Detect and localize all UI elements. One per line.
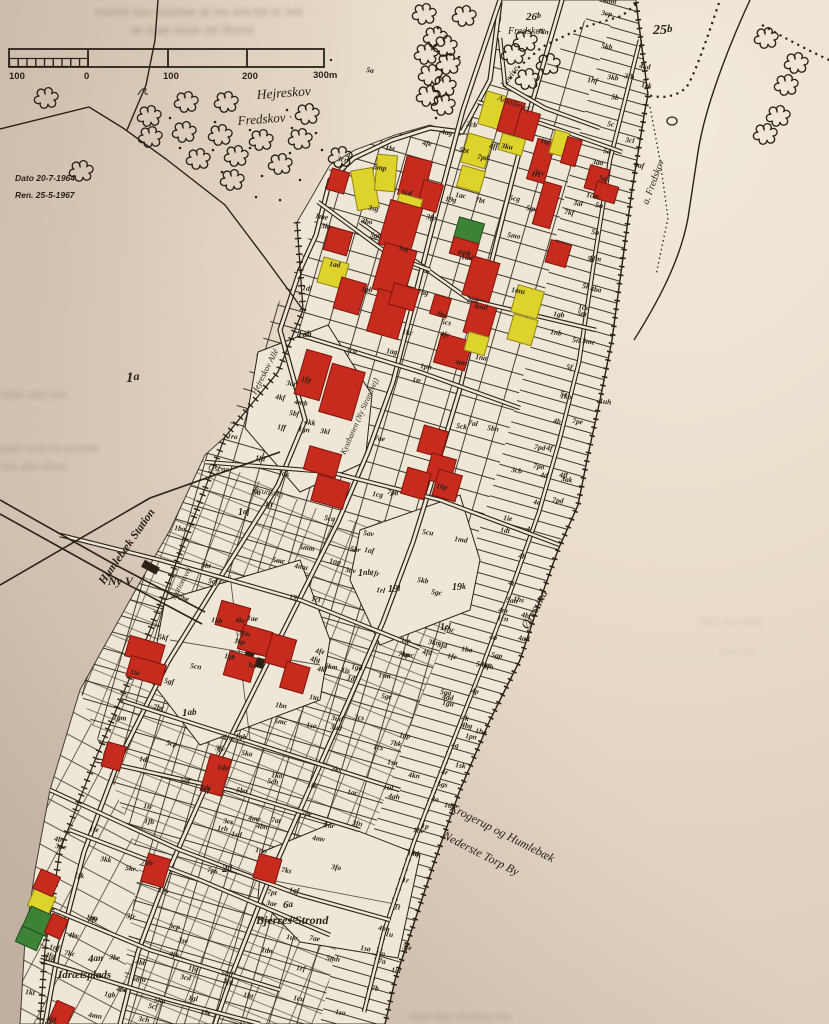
svg-text:3kn: 3kn xyxy=(427,637,441,648)
svg-text:7ae: 7ae xyxy=(374,433,387,444)
svg-text:1ib: 1ib xyxy=(307,780,318,790)
svg-text:3ar: 3ar xyxy=(285,378,298,389)
svg-text:5ba: 5ba xyxy=(236,785,249,796)
svg-text:1tg: 1tg xyxy=(540,136,551,146)
svg-text:5ka: 5ka xyxy=(154,995,167,1006)
svg-text:5gc: 5gc xyxy=(381,691,394,702)
svg-text:5ca: 5ca xyxy=(324,513,336,523)
svg-text:3sg: 3sg xyxy=(397,243,410,254)
svg-text:1kb: 1kb xyxy=(211,615,224,626)
svg-text:4kd: 4kd xyxy=(638,61,652,72)
svg-text:1fd: 1fd xyxy=(255,453,266,463)
svg-text:1sk: 1sk xyxy=(455,760,467,770)
svg-text:3kb: 3kb xyxy=(606,72,620,83)
svg-text:7bg: 7bg xyxy=(417,287,430,298)
svg-text:3sg: 3sg xyxy=(367,203,380,214)
svg-text:3cn: 3cn xyxy=(336,154,349,165)
svg-text:1gm: 1gm xyxy=(113,712,128,723)
svg-text:5gp: 5gp xyxy=(491,650,504,661)
svg-text:4ad: 4ad xyxy=(517,633,531,644)
svg-text:3sp: 3sp xyxy=(399,635,412,646)
svg-text:4ag: 4ag xyxy=(440,127,454,138)
svg-text:3ch: 3ch xyxy=(137,1014,150,1024)
svg-text:Ren. 25-5-1967: Ren. 25-5-1967 xyxy=(15,190,76,200)
svg-text:5cd: 5cd xyxy=(401,187,413,197)
svg-text:1hc: 1hc xyxy=(443,624,456,635)
svg-text:7ps: 7ps xyxy=(207,865,219,875)
svg-text:1tr: 1tr xyxy=(412,375,422,385)
svg-text:7bh: 7bh xyxy=(141,857,154,868)
svg-text:4fd: 4fd xyxy=(45,1014,57,1024)
svg-text:7bk: 7bk xyxy=(390,738,403,749)
svg-text:7pe: 7pe xyxy=(572,416,585,427)
svg-text:7po: 7po xyxy=(533,461,546,472)
svg-text:1ia: 1ia xyxy=(391,965,402,975)
svg-text:1fr: 1fr xyxy=(370,568,380,578)
svg-text:3cp: 3cp xyxy=(600,8,613,19)
svg-text:100: 100 xyxy=(9,71,25,82)
svg-text:1ph: 1ph xyxy=(420,361,433,372)
svg-text:3ca: 3ca xyxy=(466,295,479,306)
svg-text:1ia: 1ia xyxy=(251,487,262,497)
svg-text:3cv: 3cv xyxy=(533,167,546,178)
svg-text:1fh: 1fh xyxy=(483,661,495,671)
svg-text:7b: 7b xyxy=(371,983,380,993)
svg-text:3ue: 3ue xyxy=(54,841,68,852)
svg-text:7bc: 7bc xyxy=(153,702,166,713)
svg-text:5ck: 5ck xyxy=(456,421,468,431)
svg-text:1np: 1np xyxy=(329,556,342,567)
svg-text:1ta: 1ta xyxy=(309,692,320,702)
svg-text:1na: 1na xyxy=(475,352,488,363)
svg-text:4mr: 4mr xyxy=(247,813,262,824)
svg-text:1md: 1md xyxy=(454,534,469,545)
svg-text:nse ml: nse ml xyxy=(720,643,755,658)
svg-text:4bh: 4bh xyxy=(377,923,391,934)
svg-text:7be: 7be xyxy=(178,593,191,604)
svg-text:3cd: 3cd xyxy=(179,972,192,983)
svg-text:5gs: 5gs xyxy=(526,203,538,213)
svg-text:4h: 4h xyxy=(517,551,527,561)
svg-text:3ud: 3ud xyxy=(329,722,343,733)
svg-text:4fc: 4fc xyxy=(439,329,451,339)
svg-text:5ka: 5ka xyxy=(241,748,254,759)
svg-text:1so: 1so xyxy=(306,720,318,730)
svg-text:Dato 20-7-1964: Dato 20-7-1964 xyxy=(15,173,75,183)
svg-text:7pb: 7pb xyxy=(387,487,400,498)
svg-text:4fe: 4fe xyxy=(168,949,180,959)
svg-text:5mu: 5mu xyxy=(132,973,147,984)
svg-text:1to: 1to xyxy=(130,667,141,677)
svg-text:7ae: 7ae xyxy=(309,933,322,944)
svg-text:5cp: 5cp xyxy=(166,738,178,748)
svg-text:19s: 19s xyxy=(158,885,170,895)
svg-text:1bv: 1bv xyxy=(413,825,426,836)
svg-text:1ds: 1ds xyxy=(200,782,212,792)
svg-text:4kk: 4kk xyxy=(303,417,317,428)
svg-text:5a: 5a xyxy=(366,65,375,75)
svg-text:4r: 4r xyxy=(440,767,449,777)
svg-text:3cs: 3cs xyxy=(353,712,365,722)
svg-text:3cs: 3cs xyxy=(222,816,234,826)
svg-text:5bn: 5bn xyxy=(487,423,500,434)
svg-text:1kb: 1kb xyxy=(560,391,573,402)
svg-text:1uc: 1uc xyxy=(286,932,299,943)
svg-text:4bv: 4bv xyxy=(67,930,81,941)
svg-text:3be: 3be xyxy=(108,952,122,963)
svg-text:1ts: 1ts xyxy=(289,913,299,923)
svg-text:5ch: 5ch xyxy=(267,776,279,786)
svg-text:5u: 5u xyxy=(595,200,604,210)
svg-text:1r: 1r xyxy=(402,875,410,885)
svg-text:5mr: 5mr xyxy=(272,555,286,566)
svg-text:1sa: 1sa xyxy=(387,757,399,767)
svg-text:3fp: 3fp xyxy=(425,212,437,222)
svg-text:7pe: 7pe xyxy=(301,808,314,819)
svg-text:4bb: 4bb xyxy=(134,957,148,968)
svg-text:1cs: 1cs xyxy=(578,302,589,312)
svg-text:5cg: 5cg xyxy=(509,193,521,203)
svg-text:300m: 300m xyxy=(313,70,337,81)
svg-text:200: 200 xyxy=(242,71,258,82)
svg-text:5br: 5br xyxy=(350,544,362,554)
svg-text:5gc: 5gc xyxy=(431,587,444,598)
svg-text:ms aho dlsm: ms aho dlsm xyxy=(2,458,68,473)
svg-text:5cu: 5cu xyxy=(422,527,434,537)
svg-text:5kr: 5kr xyxy=(125,863,137,873)
svg-text:1hs: 1hs xyxy=(513,594,525,604)
svg-text:4be: 4be xyxy=(115,984,129,995)
svg-text:3bo: 3bo xyxy=(360,216,374,227)
svg-text:4fe: 4fe xyxy=(314,646,326,656)
svg-text:1sd: 1sd xyxy=(231,829,243,839)
svg-text:1sa: 1sa xyxy=(360,943,372,953)
svg-text:3co: 3co xyxy=(345,345,358,356)
svg-text:1hc: 1hc xyxy=(223,732,236,743)
svg-text:5cp: 5cp xyxy=(169,921,181,931)
svg-text:1gk: 1gk xyxy=(224,651,237,662)
svg-text:5kb: 5kb xyxy=(417,575,430,586)
svg-text:Ny V: Ny V xyxy=(107,574,134,588)
svg-text:1th: 1th xyxy=(444,800,455,810)
svg-text:3cb: 3cb xyxy=(510,465,523,476)
svg-text:1ad: 1ad xyxy=(329,259,342,270)
svg-text:3fr: 3fr xyxy=(125,911,136,921)
svg-text:1fg: 1fg xyxy=(301,374,312,384)
svg-text:3kk: 3kk xyxy=(99,854,113,865)
svg-text:3ks: 3ks xyxy=(330,764,343,775)
svg-text:3ae: 3ae xyxy=(265,898,279,909)
svg-text:1ar: 1ar xyxy=(324,820,336,830)
svg-text:7pd: 7pd xyxy=(477,152,490,163)
svg-text:1fg: 1fg xyxy=(188,963,199,973)
svg-text:1gb: 1gb xyxy=(553,309,566,320)
svg-text:1bp: 1bp xyxy=(436,481,449,492)
svg-text:4bg: 4bg xyxy=(460,720,474,731)
svg-text:1in: 1in xyxy=(375,948,386,958)
svg-text:1gd: 1gd xyxy=(351,662,364,673)
svg-text:1cg: 1cg xyxy=(372,489,384,499)
svg-text:1no: 1no xyxy=(255,845,268,856)
svg-text:3fb: 3fb xyxy=(623,71,635,81)
svg-text:7pd: 7pd xyxy=(552,495,565,506)
svg-text:3bo: 3bo xyxy=(435,309,449,320)
svg-text:3fv: 3fv xyxy=(214,743,226,753)
svg-text:3av: 3av xyxy=(344,565,358,576)
svg-text:1kc: 1kc xyxy=(402,327,415,338)
svg-text:3fe: 3fe xyxy=(401,942,413,952)
svg-text:3ku: 3ku xyxy=(500,141,514,152)
svg-text:1dn: 1dn xyxy=(261,945,274,956)
svg-text:4o: 4o xyxy=(430,794,440,804)
svg-text:1fm: 1fm xyxy=(589,253,602,264)
svg-text:4kn: 4kn xyxy=(536,26,550,37)
svg-text:1bn: 1bn xyxy=(275,700,288,711)
svg-text:1gb: 1gb xyxy=(235,731,248,742)
svg-text:1da: 1da xyxy=(217,762,230,773)
svg-text:5g: 5g xyxy=(599,173,608,183)
svg-text:4q: 4q xyxy=(450,740,460,750)
svg-text:5kb: 5kb xyxy=(601,41,614,52)
svg-text:1is: 1is xyxy=(341,665,351,675)
svg-text:1fk: 1fk xyxy=(74,870,85,880)
svg-text:3fo: 3fo xyxy=(330,862,342,872)
svg-text:3se: 3se xyxy=(177,935,190,946)
svg-text:5mc: 5mc xyxy=(582,336,597,347)
svg-text:1cu: 1cu xyxy=(293,993,305,1003)
svg-text:3sv: 3sv xyxy=(246,660,259,671)
svg-text:mhe sml nse: mhe sml nse xyxy=(2,386,67,401)
svg-text:1mk: 1mk xyxy=(407,848,422,859)
svg-text:3fn: 3fn xyxy=(351,818,364,829)
svg-text:4fe: 4fe xyxy=(421,138,433,148)
svg-text:1so: 1so xyxy=(335,1007,347,1017)
svg-text:0: 0 xyxy=(84,71,89,82)
svg-text:4p: 4p xyxy=(470,686,480,696)
svg-text:sml nse mei: sml nse mei xyxy=(700,613,762,628)
svg-text:1ag: 1ag xyxy=(386,346,399,357)
svg-text:5av: 5av xyxy=(363,528,376,539)
svg-text:7pd: 7pd xyxy=(534,442,547,453)
svg-text:1cs: 1cs xyxy=(373,742,384,752)
svg-text:4ba: 4ba xyxy=(589,284,603,295)
svg-text:3ak: 3ak xyxy=(560,474,574,485)
svg-text:5gg: 5gg xyxy=(440,687,453,698)
svg-text:1gb: 1gb xyxy=(104,989,117,1000)
svg-text:3fg: 3fg xyxy=(222,976,234,986)
svg-text:1da: 1da xyxy=(461,252,474,263)
svg-text:1dk: 1dk xyxy=(278,468,291,479)
svg-text:5gb: 5gb xyxy=(370,230,383,241)
svg-text:4fd: 4fd xyxy=(421,647,433,657)
svg-text:1pb: 1pb xyxy=(361,284,374,295)
svg-text:1ba: 1ba xyxy=(461,644,474,655)
svg-text:4n: 4n xyxy=(488,632,498,642)
svg-text:1ae: 1ae xyxy=(247,613,260,624)
svg-text:1cn: 1cn xyxy=(497,613,509,623)
svg-text:mse ahe slemne ms: mse ahe slemne ms xyxy=(410,1008,511,1023)
svg-text:5cn: 5cn xyxy=(190,661,202,671)
svg-text:1cm: 1cm xyxy=(586,190,600,201)
svg-text:4b: 4b xyxy=(552,416,562,426)
svg-text:1an: 1an xyxy=(86,912,99,923)
svg-text:5h: 5h xyxy=(591,227,600,237)
svg-text:4ah: 4ah xyxy=(387,791,401,802)
svg-text:4fg: 4fg xyxy=(44,950,56,960)
svg-text:unte srm ve siemm: unte srm ve siemm xyxy=(0,440,99,455)
svg-text:1fb: 1fb xyxy=(144,816,155,826)
svg-text:1ro: 1ro xyxy=(227,431,239,441)
svg-text:4kc: 4kc xyxy=(234,615,248,626)
svg-text:5gs: 5gs xyxy=(437,779,449,789)
svg-text:1uh: 1uh xyxy=(599,396,612,407)
svg-text:3ao: 3ao xyxy=(591,157,605,168)
svg-text:ne mae sniar mt lkrest: ne mae sniar mt lkrest xyxy=(130,23,254,38)
svg-text:5b: 5b xyxy=(611,92,620,102)
svg-text:1ba: 1ba xyxy=(174,523,187,534)
svg-text:5d: 5d xyxy=(603,146,612,156)
svg-text:eniem nus enaime al ms envinl: eniem nus enaime al ms envinl te lett xyxy=(95,5,303,20)
svg-text:3cb: 3cb xyxy=(465,119,478,130)
svg-text:19e: 19e xyxy=(200,1007,213,1018)
svg-text:7ks: 7ks xyxy=(281,865,293,875)
svg-text:1pn: 1pn xyxy=(465,731,478,742)
svg-text:5mh: 5mh xyxy=(326,953,341,964)
svg-text:3kr: 3kr xyxy=(320,221,333,232)
svg-text:5mo: 5mo xyxy=(507,230,522,241)
svg-text:4kn: 4kn xyxy=(407,770,421,781)
svg-text:1sm: 1sm xyxy=(378,670,392,681)
svg-text:1ac: 1ac xyxy=(347,787,360,798)
svg-text:1rk: 1rk xyxy=(641,80,653,90)
svg-text:5mp: 5mp xyxy=(373,162,388,173)
svg-text:1ac: 1ac xyxy=(455,190,468,201)
svg-text:Idrætsplads: Idrætsplads xyxy=(57,969,111,981)
svg-text:1mu: 1mu xyxy=(511,285,526,296)
svg-text:1nb: 1nb xyxy=(550,327,563,338)
svg-text:5n: 5n xyxy=(572,335,581,345)
svg-text:1kp: 1kp xyxy=(234,636,247,647)
svg-text:100: 100 xyxy=(163,71,179,82)
svg-text:5mc: 5mc xyxy=(274,716,289,727)
svg-text:7kc: 7kc xyxy=(64,948,77,959)
